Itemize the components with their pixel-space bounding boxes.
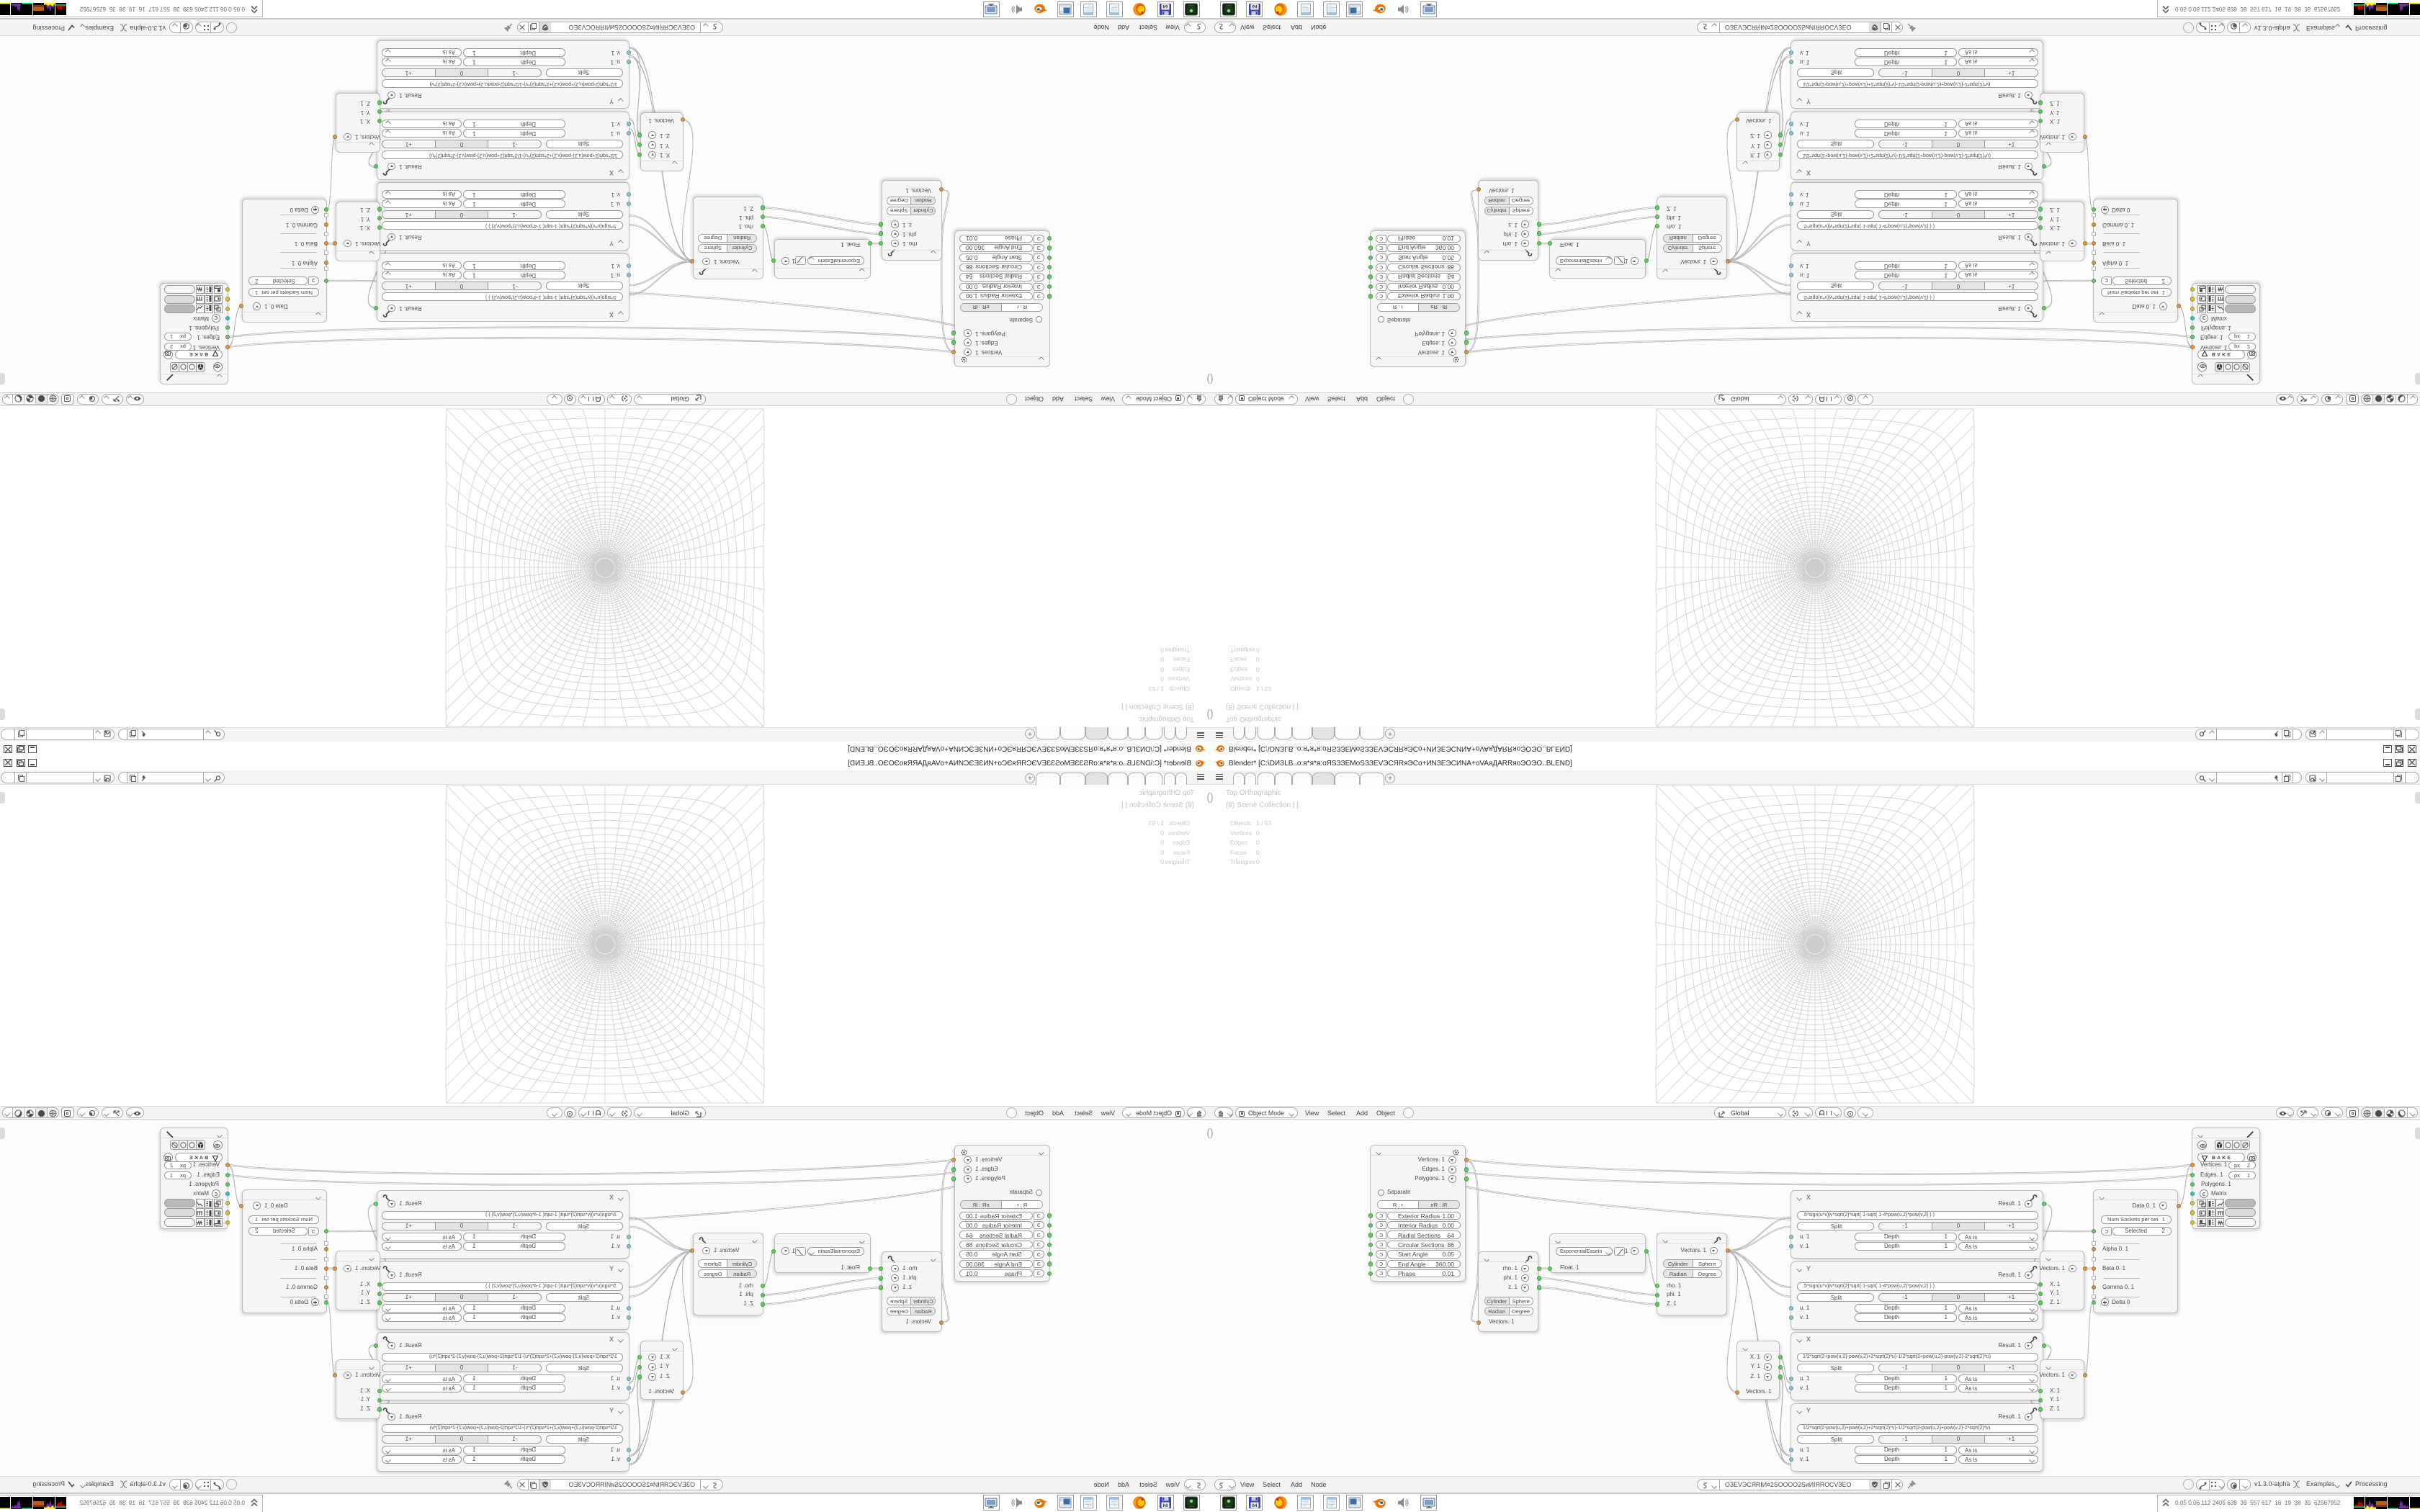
svg-text:64: 64 bbox=[1252, 1504, 1257, 1508]
svg-text:64: 64 bbox=[1252, 4, 1257, 8]
svg-text:64: 64 bbox=[1163, 4, 1168, 8]
svg-text:64: 64 bbox=[1163, 1504, 1168, 1508]
